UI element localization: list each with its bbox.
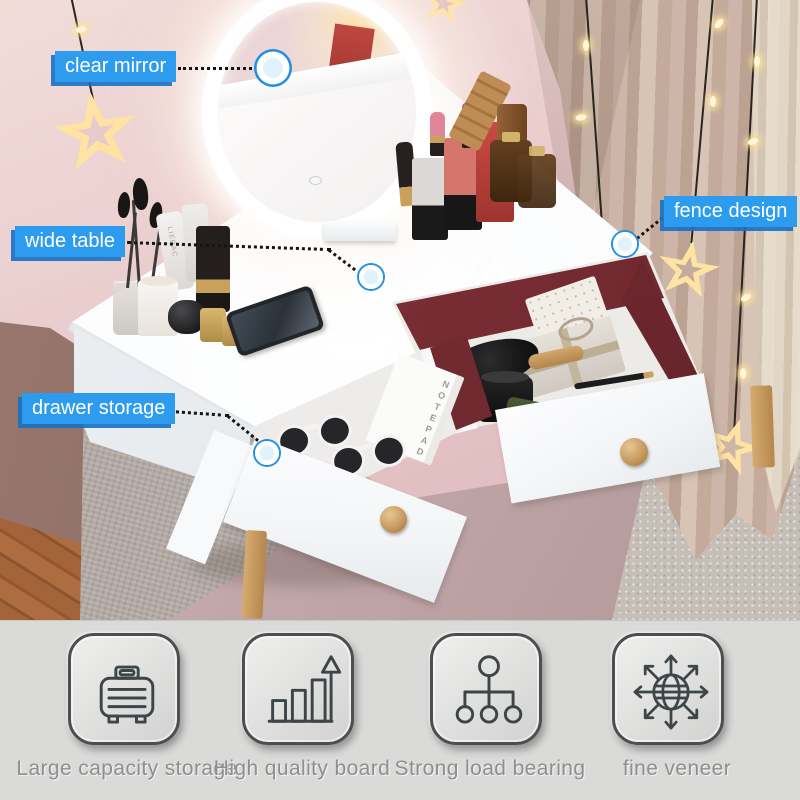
mirror-glass	[212, 0, 422, 228]
feature-tile-storage	[68, 633, 180, 745]
feature-label-veneer: fine veneer	[623, 757, 731, 781]
wooden-leg	[750, 385, 775, 468]
string-light-bulb	[740, 368, 746, 379]
led-mirror	[202, 0, 432, 238]
black-gold-bottle	[196, 226, 230, 312]
bedroom-photo: NOTEPAD LIERAC	[0, 0, 800, 620]
product-image: NOTEPAD LIERAC	[0, 0, 800, 800]
feature-panel: Large capacity storage High quality boar…	[0, 620, 800, 800]
drawer-knob	[380, 506, 407, 533]
feature-label-storage: Large capacity storage	[16, 757, 237, 781]
feature-tile-board	[242, 633, 354, 745]
perfume-bottle-amber	[518, 154, 556, 208]
string-light-bulb	[710, 96, 716, 107]
feature-label-board: High quality board	[214, 757, 390, 781]
callout-leader-line	[178, 67, 252, 70]
callout-marker-wide-table	[357, 263, 385, 291]
callout-drawer-storage: drawer storage	[22, 393, 175, 424]
lipstick-case-gray	[412, 158, 448, 240]
feature-tile-veneer	[612, 633, 724, 745]
callout-marker-drawer-storage	[253, 439, 281, 467]
mirror-touch-button	[309, 176, 322, 185]
mirror-stand	[324, 221, 396, 241]
globe-arrows-icon	[628, 649, 714, 735]
feature-tile-load	[430, 633, 542, 745]
pink-lipstick	[430, 112, 445, 156]
star-light	[48, 86, 145, 179]
bar-chart-growth-icon	[258, 649, 344, 735]
org-tree-icon	[446, 649, 532, 735]
callout-wide-table: wide table	[15, 226, 125, 257]
string-light-bulb	[754, 56, 760, 67]
string-light-bulb	[583, 40, 589, 51]
drawer-knob	[620, 438, 648, 466]
callout-fence-design: fence design	[664, 196, 797, 227]
callout-clear-mirror: clear mirror	[55, 51, 176, 82]
feature-label-load: Strong load bearing	[395, 757, 586, 781]
callout-marker-fence-design	[611, 230, 639, 258]
suitcase-icon	[84, 649, 170, 735]
callout-marker-clear-mirror	[254, 49, 292, 87]
